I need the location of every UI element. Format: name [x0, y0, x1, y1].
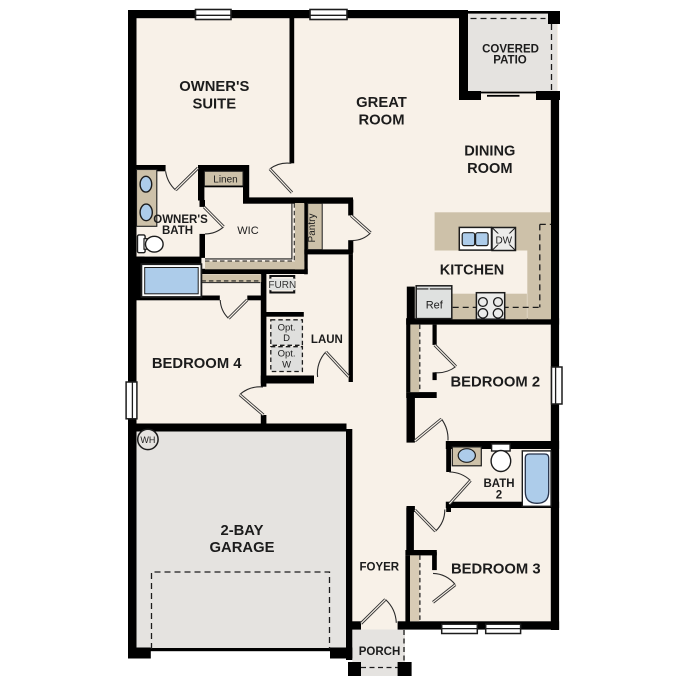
svg-text:DW: DW [495, 236, 512, 247]
svg-text:D: D [283, 333, 290, 344]
svg-text:GARAGE: GARAGE [210, 540, 275, 556]
svg-text:2-BAY: 2-BAY [220, 523, 263, 539]
svg-text:ROOM: ROOM [358, 113, 404, 129]
svg-text:OWNER'S: OWNER'S [179, 79, 249, 95]
svg-text:BEDROOM 4: BEDROOM 4 [152, 356, 242, 372]
svg-text:KITCHEN: KITCHEN [440, 263, 504, 279]
svg-text:PORCH: PORCH [359, 646, 401, 658]
svg-text:BATH: BATH [162, 225, 193, 237]
svg-text:Pantry: Pantry [307, 214, 318, 243]
svg-text:BEDROOM 2: BEDROOM 2 [450, 374, 540, 390]
svg-text:DINING: DINING [464, 143, 515, 159]
svg-text:Opt.: Opt. [278, 323, 296, 334]
svg-text:BATH: BATH [483, 478, 514, 490]
svg-text:ROOM: ROOM [467, 161, 512, 177]
svg-text:Linen: Linen [213, 175, 237, 186]
svg-text:FOYER: FOYER [359, 562, 399, 574]
svg-text:WIC: WIC [237, 225, 258, 237]
svg-text:Ref: Ref [426, 299, 444, 311]
svg-text:PATIO: PATIO [493, 55, 526, 67]
svg-text:W: W [282, 360, 291, 371]
svg-text:Opt.: Opt. [278, 349, 296, 360]
svg-text:2: 2 [496, 489, 502, 501]
svg-text:FURN: FURN [268, 280, 296, 291]
svg-text:LAUN: LAUN [311, 334, 343, 346]
svg-text:WH: WH [140, 435, 155, 445]
svg-text:SUITE: SUITE [193, 96, 237, 112]
svg-text:GREAT: GREAT [356, 95, 407, 111]
svg-text:BEDROOM 3: BEDROOM 3 [451, 562, 541, 578]
